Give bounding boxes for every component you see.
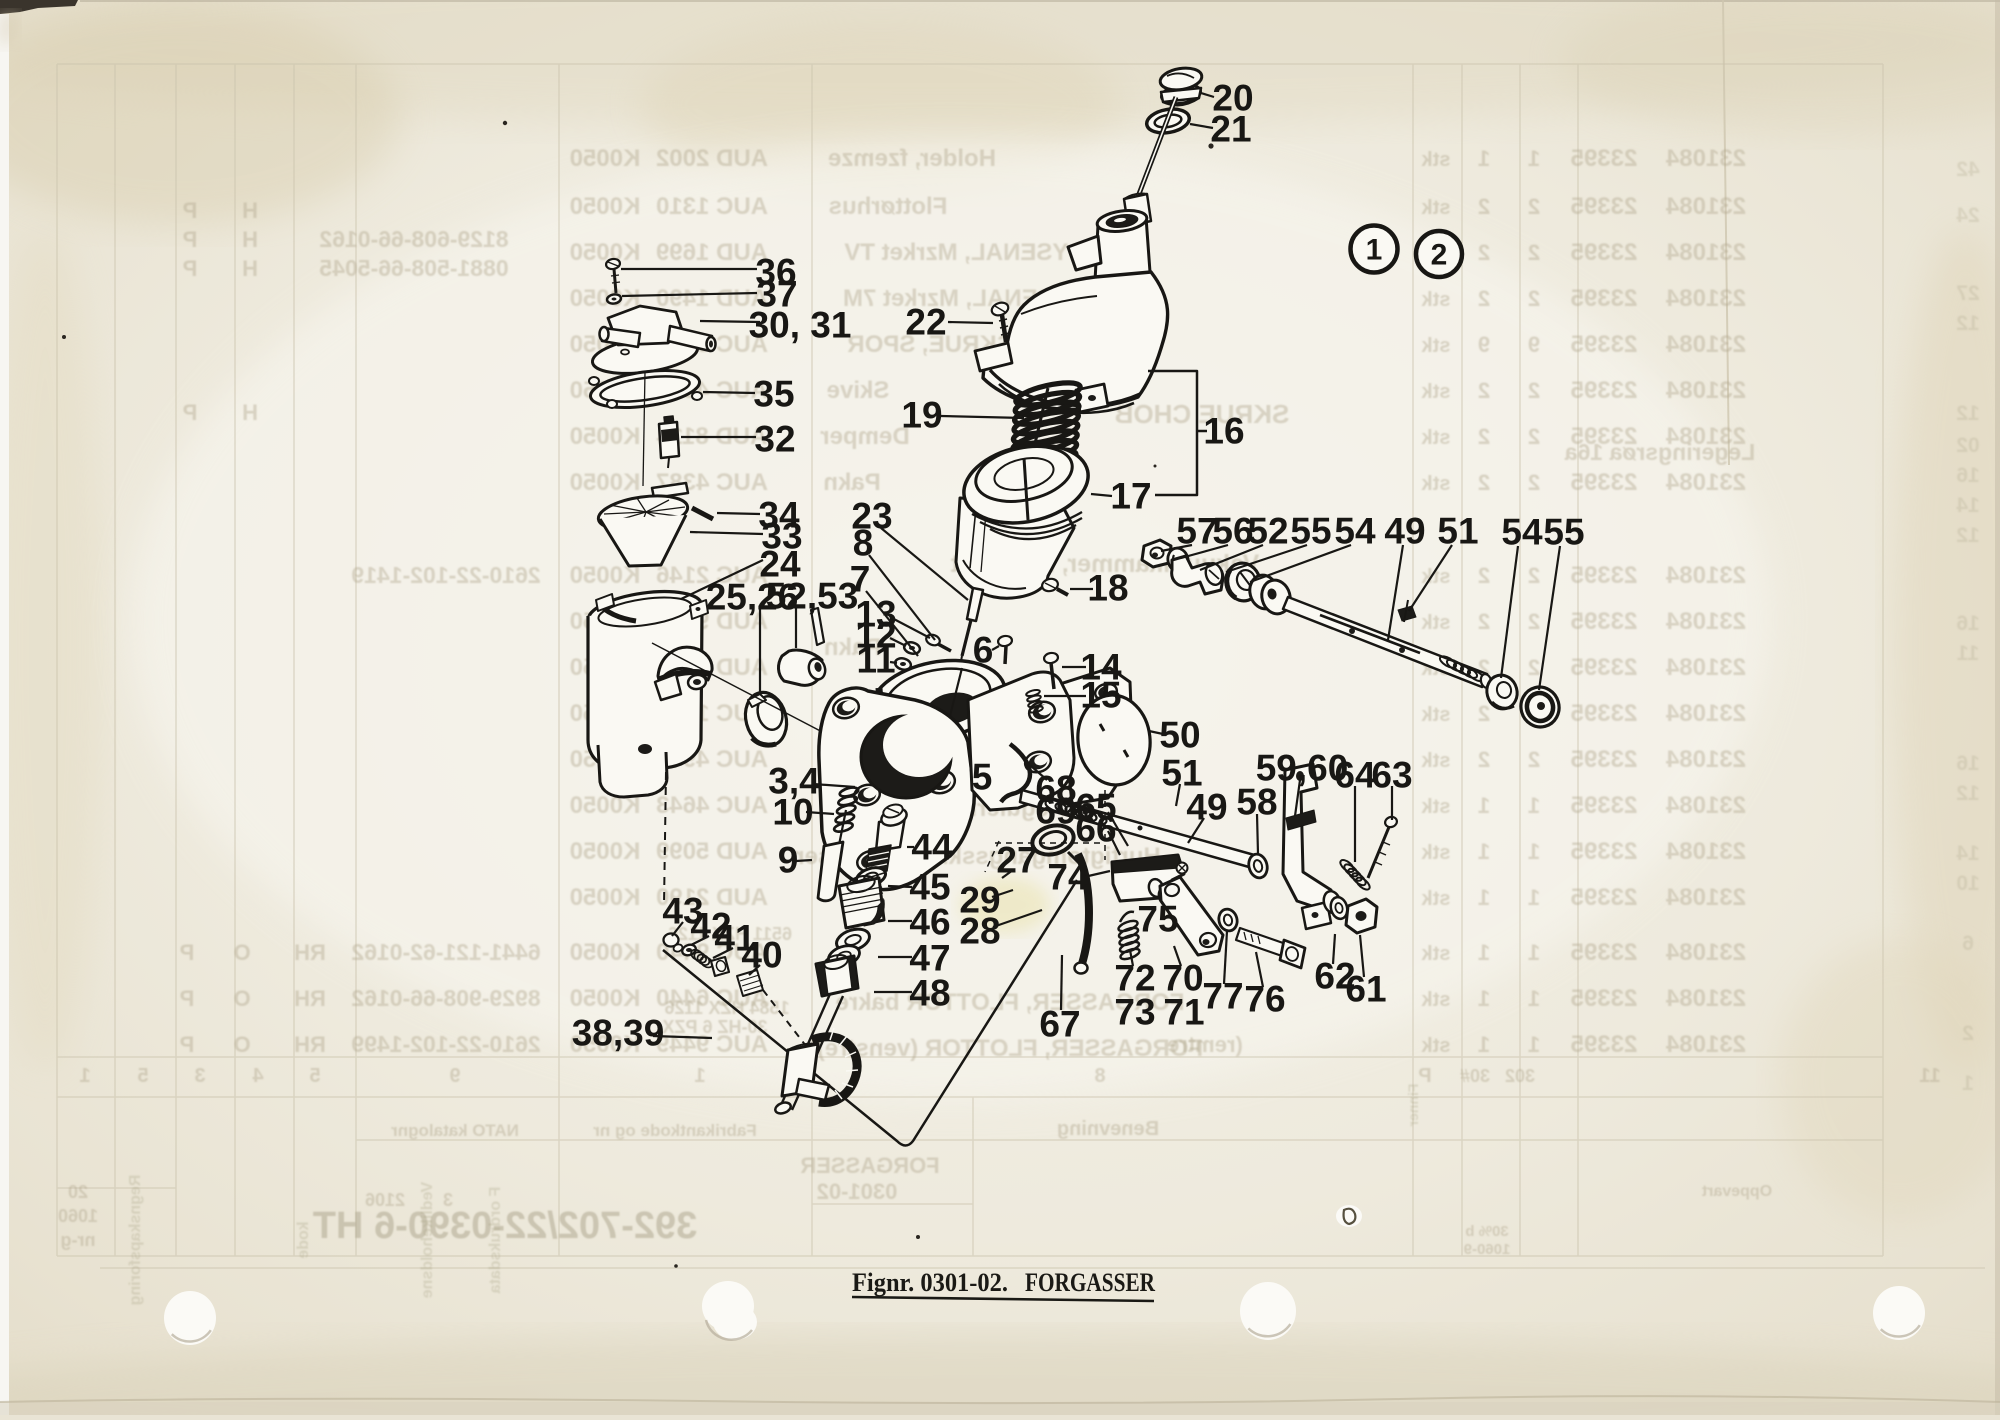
svg-text:1: 1 <box>694 1065 705 1087</box>
svg-text:11: 11 <box>1957 642 1980 665</box>
svg-text:231084: 231084 <box>1665 1031 1746 1058</box>
svg-text:19: 19 <box>901 395 942 436</box>
svg-text:231084: 231084 <box>1665 562 1746 589</box>
svg-text:2: 2 <box>1528 563 1540 588</box>
svg-text:K0050: K0050 <box>570 145 641 172</box>
svg-text:302: 302 <box>1505 1066 1535 1086</box>
svg-text:1: 1 <box>79 1065 90 1087</box>
svg-text:Holder, fzemze: Holder, fzemze <box>828 145 996 172</box>
svg-text:21: 21 <box>1210 109 1251 150</box>
svg-text:1060-9: 1060-9 <box>1464 1241 1511 1258</box>
svg-text:Benevning: Benevning <box>1057 1118 1159 1140</box>
svg-text:Flottørhus: Flottørhus <box>829 193 948 220</box>
svg-text:(remtre: (remtre <box>1167 1032 1243 1057</box>
svg-text:16: 16 <box>1956 464 1979 487</box>
svg-text:23395: 23395 <box>1571 145 1638 172</box>
svg-text:23395: 23395 <box>1571 884 1638 911</box>
svg-text:51: 51 <box>1437 511 1478 552</box>
svg-text:42: 42 <box>1956 158 1979 181</box>
svg-text:2: 2 <box>1528 470 1540 495</box>
svg-text:8929-908-66-0162: 8929-908-66-0162 <box>351 985 540 1011</box>
svg-text:231084: 231084 <box>1665 331 1746 358</box>
svg-text:stk: stk <box>1421 149 1451 171</box>
svg-text:55: 55 <box>1290 511 1331 552</box>
svg-text:H: H <box>242 400 258 425</box>
svg-text:AUD 2002: AUD 2002 <box>656 145 768 172</box>
svg-text:77: 77 <box>1202 976 1243 1017</box>
svg-text:stk: stk <box>1421 612 1451 634</box>
svg-text:23395: 23395 <box>1571 469 1638 496</box>
svg-text:231084: 231084 <box>1665 792 1746 819</box>
svg-text:23395: 23395 <box>1571 746 1638 773</box>
svg-text:8: 8 <box>853 523 874 564</box>
svg-text:24: 24 <box>1956 204 1980 227</box>
svg-text:RH: RH <box>294 1032 326 1057</box>
svg-text:69: 69 <box>1035 791 1076 832</box>
svg-text:FORGASSER: FORGASSER <box>800 1153 939 1178</box>
svg-text:K0050: K0050 <box>570 285 641 312</box>
svg-text:23395: 23395 <box>1571 1031 1638 1058</box>
svg-text:Regnskapsforing: Regnskapsforing <box>127 1175 144 1306</box>
svg-text:16: 16 <box>1203 411 1244 452</box>
svg-text:AUD 5099: AUD 5099 <box>656 838 768 865</box>
svg-text:2: 2 <box>1528 240 1540 265</box>
svg-text:231084: 231084 <box>1665 985 1746 1012</box>
svg-text:17: 17 <box>1110 476 1151 517</box>
svg-text:H: H <box>242 256 258 281</box>
svg-text:02: 02 <box>1956 434 1979 457</box>
svg-text:52,53: 52,53 <box>766 576 859 617</box>
svg-text:61: 61 <box>1345 969 1386 1010</box>
svg-text:2: 2 <box>1528 609 1540 634</box>
svg-text:5: 5 <box>972 757 993 798</box>
svg-text:1: 1 <box>1478 839 1490 864</box>
svg-text:231084: 231084 <box>1665 469 1746 496</box>
svg-text:231084: 231084 <box>1665 654 1746 681</box>
svg-text:46: 46 <box>909 902 950 943</box>
svg-text:64: 64 <box>1334 755 1376 796</box>
svg-text:2610-22-102-1499: 2610-22-102-1499 <box>351 1031 540 1057</box>
svg-text:12: 12 <box>1956 524 1979 547</box>
svg-text:12: 12 <box>1956 312 1979 335</box>
svg-text:1: 1 <box>1528 146 1540 171</box>
svg-text:20: 20 <box>68 1182 88 1202</box>
svg-text:392-702/22-0390-6 HT: 392-702/22-0390-6 HT <box>313 1205 697 1247</box>
svg-text:Demper: Demper <box>820 423 909 450</box>
svg-text:2: 2 <box>1478 747 1490 772</box>
svg-text:1: 1 <box>1528 1032 1540 1057</box>
svg-text:0301-02: 0301-02 <box>817 1179 898 1204</box>
svg-text:stk: stk <box>1421 888 1451 910</box>
svg-text:73: 73 <box>1114 992 1155 1033</box>
svg-text:1: 1 <box>1962 1072 1974 1095</box>
svg-text:1: 1 <box>1528 986 1540 1011</box>
svg-text:2: 2 <box>1528 424 1540 449</box>
svg-text:stk: stk <box>1421 1035 1451 1057</box>
svg-text:AUD 1699: AUD 1699 <box>656 239 768 266</box>
svg-text:Skive: Skive <box>827 377 890 404</box>
svg-text:K0050: K0050 <box>570 985 641 1012</box>
svg-text:22: 22 <box>905 302 946 343</box>
svg-text:2: 2 <box>1478 701 1490 726</box>
svg-text:kode: kode <box>295 1221 312 1258</box>
svg-text:48: 48 <box>909 973 950 1014</box>
svg-text:1: 1 <box>1528 940 1540 965</box>
svg-text:1: 1 <box>1478 793 1490 818</box>
svg-text:11: 11 <box>1919 1065 1940 1087</box>
svg-text:P: P <box>183 400 198 425</box>
svg-text:54: 54 <box>1501 512 1543 553</box>
svg-text:231084: 231084 <box>1665 838 1746 865</box>
svg-text:231084: 231084 <box>1665 939 1746 966</box>
svg-text:54: 54 <box>1334 511 1376 552</box>
svg-text:23395: 23395 <box>1571 193 1638 220</box>
svg-text:Oppevart: Oppevart <box>1701 1183 1772 1200</box>
svg-text:RH: RH <box>294 940 326 965</box>
svg-text:30% b: 30% b <box>1465 1223 1508 1240</box>
svg-text:231084: 231084 <box>1665 746 1746 773</box>
svg-text:stk: stk <box>1421 427 1451 449</box>
svg-text:1: 1 <box>1478 986 1490 1011</box>
svg-text:P: P <box>183 256 198 281</box>
svg-text:NATO katalognr: NATO katalognr <box>391 1121 519 1140</box>
svg-text:4: 4 <box>252 1065 264 1087</box>
svg-text:30, 31: 30, 31 <box>749 305 852 346</box>
svg-text:P: P <box>180 940 195 965</box>
svg-text:AUC 1310: AUC 1310 <box>656 193 768 220</box>
svg-text:1060: 1060 <box>58 1206 98 1226</box>
svg-text:stk: stk <box>1421 943 1451 965</box>
svg-text:52: 52 <box>1247 511 1288 552</box>
svg-text:2: 2 <box>1431 239 1448 272</box>
svg-text:H: H <box>242 198 258 223</box>
svg-text:35: 35 <box>753 374 794 415</box>
svg-text:K0050: K0050 <box>570 193 641 220</box>
svg-text:2: 2 <box>1478 609 1490 634</box>
svg-text:0881-508-66-5045: 0881-508-66-5045 <box>319 255 508 281</box>
svg-text:30#: 30# <box>1460 1066 1490 1086</box>
svg-text:32: 32 <box>754 419 795 460</box>
svg-text:FORGASSER, FLOTTOR (venstre): FORGASSER, FLOTTOR (venstre) <box>817 1035 1203 1062</box>
svg-text:30-HZ 6 PZX: 30-HZ 6 PZX <box>662 1017 767 1037</box>
svg-text:23395: 23395 <box>1571 608 1638 635</box>
svg-text:O: O <box>233 940 250 965</box>
svg-text:1: 1 <box>1478 940 1490 965</box>
svg-text:74: 74 <box>1047 857 1089 898</box>
svg-text:231084: 231084 <box>1665 608 1746 635</box>
svg-text:10: 10 <box>772 792 813 833</box>
svg-text:2: 2 <box>1478 470 1490 495</box>
svg-text:2: 2 <box>1478 424 1490 449</box>
svg-text:27: 27 <box>1956 282 1979 305</box>
svg-text:5: 5 <box>137 1065 148 1087</box>
svg-text:9: 9 <box>1528 332 1540 357</box>
svg-text:27: 27 <box>996 840 1037 881</box>
svg-text:6441-121-62-0162: 6441-121-62-0162 <box>351 939 540 965</box>
svg-text:3: 3 <box>194 1065 205 1087</box>
svg-text:2: 2 <box>1962 1022 1974 1045</box>
svg-text:10: 10 <box>1956 872 1979 895</box>
svg-text:RH: RH <box>294 986 326 1011</box>
svg-text:14: 14 <box>1956 842 1980 865</box>
svg-text:stk: stk <box>1421 473 1451 495</box>
svg-text:23395: 23395 <box>1571 838 1638 865</box>
svg-text:231084: 231084 <box>1665 145 1746 172</box>
svg-text:P: P <box>180 1032 195 1057</box>
svg-text:63: 63 <box>1371 755 1412 796</box>
svg-text:K0050: K0050 <box>570 884 641 911</box>
svg-text:23395: 23395 <box>1571 331 1638 358</box>
svg-text:16: 16 <box>1956 612 1979 635</box>
svg-text:Pakn: Pakn <box>823 469 880 496</box>
svg-text:H: H <box>242 227 258 252</box>
svg-text:1: 1 <box>1478 885 1490 910</box>
svg-text:12: 12 <box>1956 782 1979 805</box>
svg-text:1: 1 <box>1478 1032 1490 1057</box>
svg-text:231084: 231084 <box>1665 239 1746 266</box>
svg-text:K0050: K0050 <box>570 423 641 450</box>
svg-text:38,39: 38,39 <box>572 1013 665 1054</box>
svg-text:23395: 23395 <box>1571 377 1638 404</box>
svg-text:1: 1 <box>1528 793 1540 818</box>
svg-text:11: 11 <box>856 640 895 681</box>
svg-text:231084: 231084 <box>1665 884 1746 911</box>
svg-text:Fabrikantkode og nr: Fabrikantkode og nr <box>593 1121 757 1140</box>
svg-text:9: 9 <box>778 840 799 881</box>
svg-text:O: O <box>233 986 250 1011</box>
svg-text:AUC 4643: AUC 4643 <box>656 792 768 819</box>
svg-text:231084: 231084 <box>1665 700 1746 727</box>
svg-text:SKRUE CHOB: SKRUE CHOB <box>1115 399 1290 429</box>
svg-text:Legeringsrøa 16a: Legeringsrøa 16a <box>1565 439 1756 465</box>
svg-text:2: 2 <box>1528 378 1540 403</box>
svg-text:40: 40 <box>741 935 782 976</box>
svg-text:2610-22-102-1419: 2610-22-102-1419 <box>351 562 540 588</box>
svg-text:1: 1 <box>1528 885 1540 910</box>
svg-text:12: 12 <box>1956 402 1979 425</box>
svg-text:2: 2 <box>1478 194 1490 219</box>
svg-text:23395: 23395 <box>1571 792 1638 819</box>
svg-text:DYSENAL, Mzrket TV: DYSENAL, Mzrket TV <box>844 239 1085 266</box>
svg-text:15: 15 <box>1080 675 1121 716</box>
svg-text:stk: stk <box>1421 750 1451 772</box>
svg-text:49: 49 <box>1384 511 1425 552</box>
svg-text:2: 2 <box>1528 286 1540 311</box>
svg-text:50: 50 <box>1159 715 1200 756</box>
svg-text:2: 2 <box>1478 563 1490 588</box>
svg-text:2: 2 <box>1528 747 1540 772</box>
svg-text:14: 14 <box>1956 494 1980 517</box>
svg-text:76: 76 <box>1244 979 1285 1020</box>
svg-text:23395: 23395 <box>1571 939 1638 966</box>
svg-text:231084: 231084 <box>1665 193 1746 220</box>
svg-text:231084: 231084 <box>1665 377 1746 404</box>
svg-text:1: 1 <box>1366 234 1383 267</box>
svg-text:6: 6 <box>973 630 994 671</box>
svg-text:71: 71 <box>1163 992 1204 1033</box>
svg-text:Fignr. 0301-02.: Fignr. 0301-02. <box>852 1268 1008 1297</box>
svg-text:stk: stk <box>1421 704 1451 726</box>
svg-text:2: 2 <box>1478 378 1490 403</box>
svg-text:stk: stk <box>1421 842 1451 864</box>
svg-text:23395: 23395 <box>1571 654 1638 681</box>
svg-text:F ordruksdata: F ordruksdata <box>487 1187 504 1294</box>
svg-text:57: 57 <box>1176 511 1217 552</box>
svg-text:9: 9 <box>1478 332 1490 357</box>
svg-text:K0050: K0050 <box>570 469 641 496</box>
svg-text:44: 44 <box>911 827 953 868</box>
svg-text:23395: 23395 <box>1571 985 1638 1012</box>
svg-text:K0050: K0050 <box>570 939 641 966</box>
svg-text:23395: 23395 <box>1571 700 1638 727</box>
svg-text:nr-g: nr-g <box>61 1230 96 1250</box>
svg-text:23395: 23395 <box>1571 285 1638 312</box>
svg-text:2: 2 <box>1528 655 1540 680</box>
svg-text:9: 9 <box>449 1065 460 1087</box>
svg-text:2: 2 <box>1528 194 1540 219</box>
svg-text:8: 8 <box>1094 1065 1105 1087</box>
svg-text:67: 67 <box>1039 1004 1080 1045</box>
svg-text:1: 1 <box>1478 146 1490 171</box>
svg-text:P: P <box>180 986 195 1011</box>
svg-text:stk: stk <box>1421 989 1451 1011</box>
svg-text:18: 18 <box>1087 568 1128 609</box>
svg-text:P: P <box>183 198 198 223</box>
svg-text:Vedlikeholdsne: Vedlikeholdsne <box>419 1182 436 1299</box>
svg-text:stk: stk <box>1421 335 1451 357</box>
svg-text:6: 6 <box>1962 932 1974 955</box>
svg-text:Finner: Finner <box>1405 1084 1421 1127</box>
svg-text:O: O <box>233 1032 250 1057</box>
svg-text:8129-608-66-0162: 8129-608-66-0162 <box>319 226 508 252</box>
svg-text:28: 28 <box>959 911 1000 952</box>
svg-text:231084: 231084 <box>1665 285 1746 312</box>
svg-text:49: 49 <box>1186 787 1227 828</box>
svg-text:K0050: K0050 <box>570 838 641 865</box>
svg-text:1: 1 <box>1528 839 1540 864</box>
svg-text:5: 5 <box>309 1065 320 1087</box>
svg-text:stk: stk <box>1421 796 1451 818</box>
svg-text:55: 55 <box>1543 512 1584 553</box>
svg-text:P: P <box>183 227 198 252</box>
svg-text:K0050: K0050 <box>570 239 641 266</box>
svg-text:stk: stk <box>1421 289 1451 311</box>
svg-text:75: 75 <box>1137 899 1178 940</box>
svg-text:2: 2 <box>1478 286 1490 311</box>
svg-text:23395: 23395 <box>1571 562 1638 589</box>
svg-text:23395: 23395 <box>1571 239 1638 266</box>
svg-text:2: 2 <box>1478 240 1490 265</box>
svg-text:FORGASSER: FORGASSER <box>1025 1268 1155 1297</box>
svg-text:16: 16 <box>1956 752 1979 775</box>
svg-text:66: 66 <box>1075 809 1116 850</box>
svg-text:stk: stk <box>1421 381 1451 403</box>
svg-text:stk: stk <box>1421 197 1451 219</box>
